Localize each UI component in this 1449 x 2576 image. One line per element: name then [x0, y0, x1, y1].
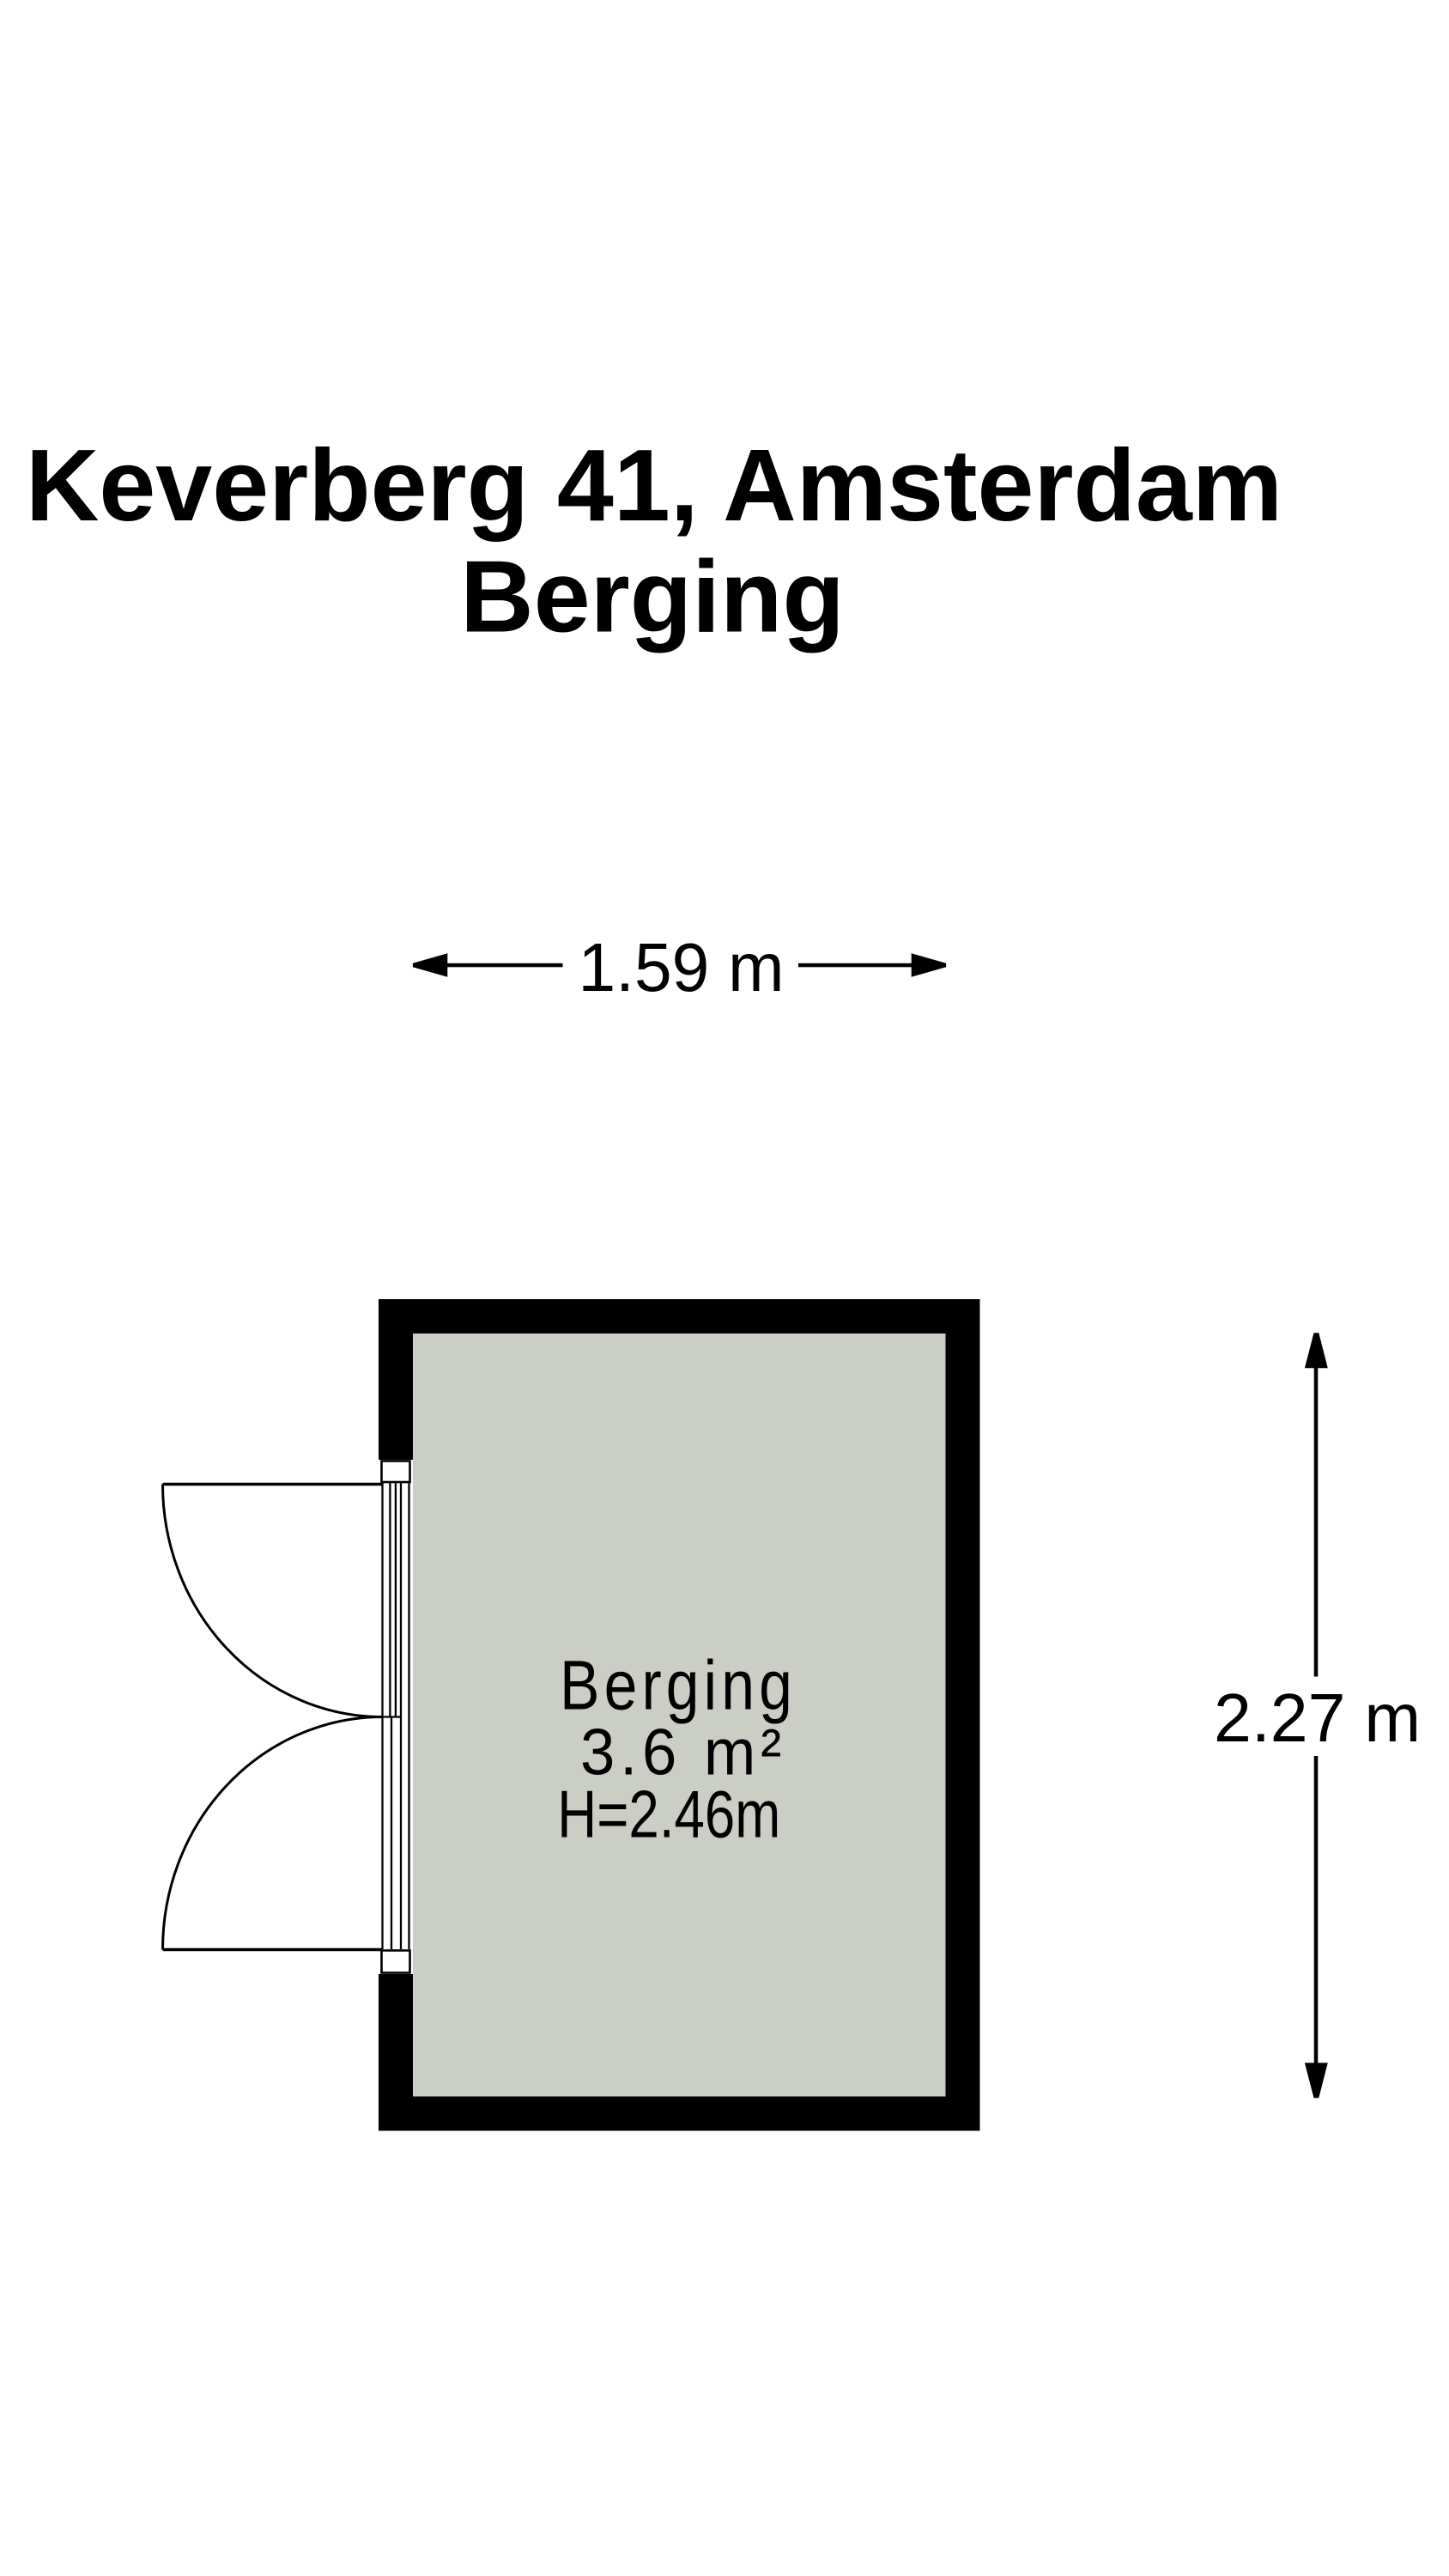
svg-text:Keverberg 41, Amsterdam: Keverberg 41, Amsterdam	[26, 429, 1282, 543]
svg-text:Berging: Berging	[460, 541, 845, 654]
svg-text:1.59 m: 1.59 m	[579, 929, 785, 1005]
svg-text:2.27 m: 2.27 m	[1214, 1680, 1421, 1756]
svg-text:Berging: Berging	[560, 1646, 797, 1724]
svg-text:H=2.46m: H=2.46m	[557, 1776, 780, 1851]
